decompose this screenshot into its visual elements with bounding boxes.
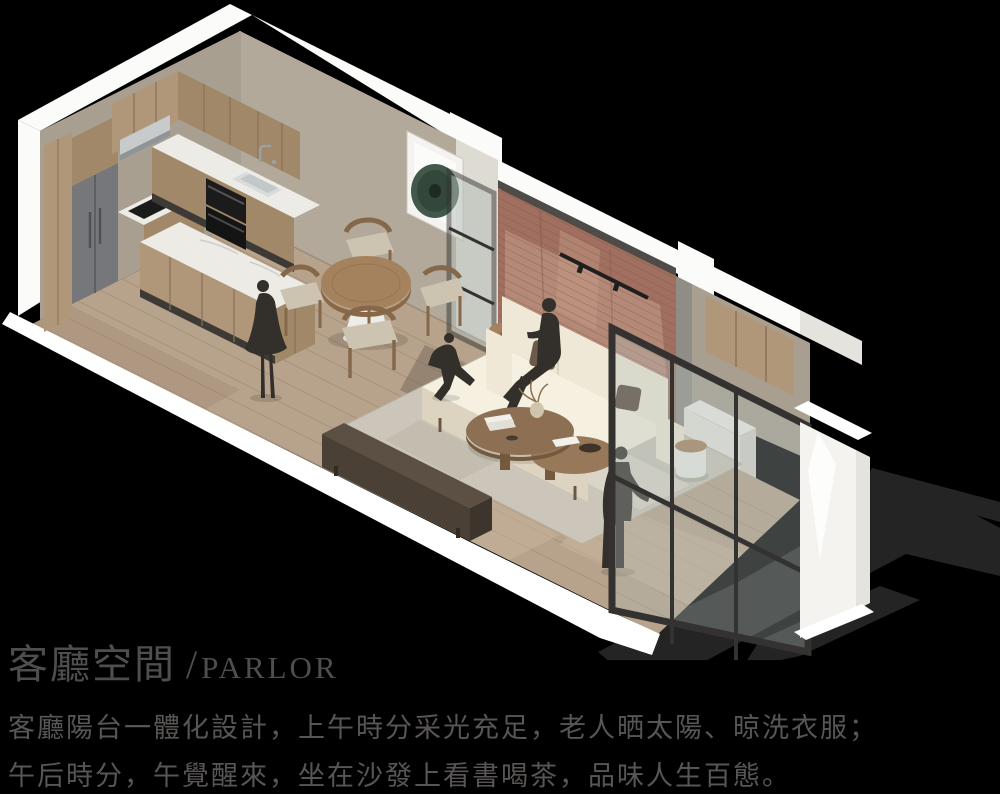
caption-line-1: 客廳陽台一體化設計，上午時分采光充足，老人晒太陽、晾洗衣服； bbox=[8, 704, 998, 752]
caption: 客廳空間/PARLOR 客廳陽台一體化設計，上午時分采光充足，老人晒太陽、晾洗衣… bbox=[8, 632, 998, 794]
sofa-armrest bbox=[486, 328, 512, 402]
coffee-table-1 bbox=[466, 407, 574, 455]
title-english: PARLOR bbox=[201, 650, 338, 685]
axon-rendering bbox=[0, 0, 1000, 660]
right-outer-wall bbox=[794, 401, 874, 640]
page-title: 客廳空間/PARLOR bbox=[8, 632, 998, 690]
table-tray bbox=[579, 444, 601, 453]
title-chinese: 客廳空間 bbox=[8, 642, 176, 687]
caption-body: 客廳陽台一體化設計，上午時分采光充足，老人晒太陽、晾洗衣服； 午后時分，午覺醒來… bbox=[8, 704, 998, 794]
title-slash: / bbox=[186, 642, 199, 687]
caption-line-2: 午后時分，午覺醒來，坐在沙發上看書喝茶，品味人生百態。 bbox=[8, 752, 998, 794]
poster-canvas: 客廳空間/PARLOR 客廳陽台一體化設計，上午時分采光充足，老人晒太陽、晾洗衣… bbox=[0, 0, 1000, 794]
